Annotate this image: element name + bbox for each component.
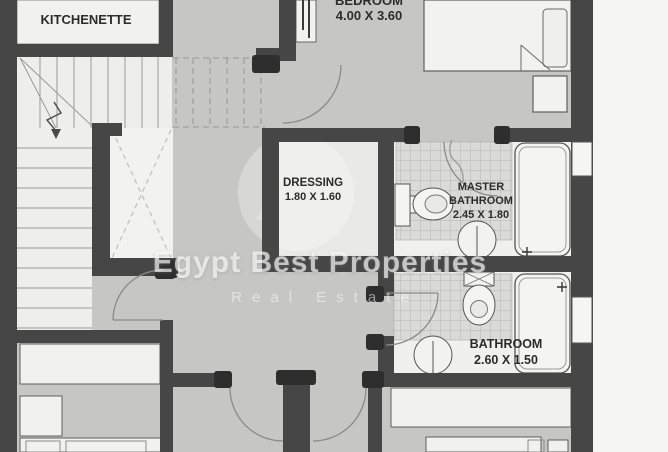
bathroom-label: BATHROOM — [470, 337, 543, 351]
master-bathroom-label-2: BATHROOM — [449, 195, 513, 207]
stairs-lower-flight — [17, 128, 92, 330]
bedroom-nightstand — [533, 76, 567, 112]
dressing-dimensions: 1.80 X 1.60 — [285, 191, 341, 203]
kitchenette-label: KITCHENETTE — [41, 12, 132, 27]
floor-plan: KITCHENETTE BEDROOM 4.00 X 3.60 DRESSING… — [0, 0, 668, 452]
bottom-left-nightstand — [20, 396, 62, 436]
top-door-panel — [296, 0, 316, 42]
master-bathroom-bathtub — [515, 143, 570, 257]
bedroom-dimensions: 4.00 X 3.60 — [336, 8, 403, 23]
bathroom-dimensions: 2.60 X 1.50 — [474, 353, 538, 367]
dressing-label: DRESSING — [283, 177, 343, 189]
master-bathroom-label-1: MASTER — [458, 181, 505, 193]
bedroom-bed — [424, 0, 571, 71]
master-bathroom-dimensions: 2.45 X 1.80 — [453, 209, 509, 221]
bedroom-label: BEDROOM — [335, 0, 403, 8]
bottom-left-closet — [20, 344, 160, 384]
floor-plan-drawing: KITCHENETTE BEDROOM 4.00 X 3.60 DRESSING… — [0, 0, 668, 452]
bottom-right-closet — [391, 388, 571, 427]
elevator-shaft — [110, 128, 173, 262]
bathroom-toilet — [463, 272, 495, 325]
bottom-left-bed — [20, 438, 163, 452]
